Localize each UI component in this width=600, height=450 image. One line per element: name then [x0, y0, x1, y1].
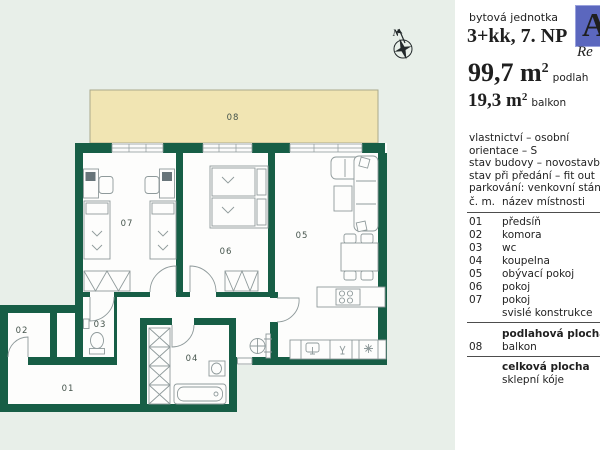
wardrobe [225, 271, 258, 291]
entrance-threshold [238, 358, 253, 364]
wardrobe [84, 271, 130, 291]
compass-icon: N [391, 28, 415, 62]
floor-plan-svg: N 0102030405060708 [0, 0, 455, 450]
toilet-icon [91, 333, 104, 349]
apartment-outline [0, 143, 387, 412]
room-label-02: 02 [16, 326, 29, 336]
room-table-row: 01 předsíň [469, 216, 592, 229]
balcony-table-row: 08 balkon [469, 341, 537, 353]
room-name: pokoj [502, 281, 530, 294]
small-sink [84, 319, 90, 329]
room-number: 07 [469, 294, 502, 307]
room-name: komora [502, 229, 542, 242]
floor-area-suffix: podlah [553, 72, 589, 84]
room-table-row: 02 komora [469, 229, 592, 242]
room-name: pokoj [502, 294, 530, 307]
room-table-row: 04 koupelna [469, 255, 592, 268]
desk-chair [145, 177, 159, 194]
floor-area-sup: 2 [542, 61, 549, 76]
desk-chair [99, 177, 113, 194]
room-name: obývací pokoj [502, 268, 574, 281]
room-number: 03 [469, 242, 502, 255]
room-label-03: 03 [94, 320, 107, 330]
room-table-row: 07 pokoj [469, 294, 592, 307]
unit-type-title: 3+kk, 7. NP [467, 25, 567, 48]
room-name: wc [502, 242, 516, 255]
room-number: 05 [469, 268, 502, 281]
room-label-07: 07 [121, 219, 134, 229]
table-divider [467, 356, 600, 357]
unit-label: bytová jednotka [469, 11, 558, 24]
property-detail-line: orientace – S [469, 145, 600, 158]
room-table-row: svislé konstrukce [469, 307, 592, 320]
compass-north-label: N [392, 28, 400, 38]
balcony-row-number: 08 [469, 341, 502, 353]
floor-plan: N 0102030405060708 [0, 0, 455, 450]
room-name: svislé konstrukce [502, 307, 592, 320]
kitchen-island [317, 287, 385, 307]
room-number: 04 [469, 255, 502, 268]
table-divider [467, 212, 600, 213]
room-table-row: 03 wc [469, 242, 592, 255]
company-logo: A [575, 5, 600, 47]
table-divider [467, 322, 600, 323]
room-name: koupelna [502, 255, 550, 268]
room-label-08: 08 [227, 113, 240, 123]
room-number [469, 307, 502, 320]
floor-area-value: 99,7 m [468, 58, 542, 87]
room-number: 02 [469, 229, 502, 242]
room-number: 01 [469, 216, 502, 229]
balcony-area-sup: 2 [522, 91, 528, 103]
info-panel: bytová jednotka 3+kk, 7. NP A Re 99,7 m2… [455, 0, 600, 450]
kitchen-counter [290, 340, 386, 359]
property-detail-line: stav při předání – fit out [469, 170, 600, 183]
balcony-area-line: 19,3 m2balkon [468, 90, 566, 112]
room-label-04: 04 [186, 354, 199, 364]
room-table-row: 05 obývací pokoj [469, 268, 592, 281]
room-label-01: 01 [62, 384, 75, 394]
room-table: 01 předsíň 02 komora 03 wc 04 koupelna 0… [469, 216, 592, 320]
coffee-table [334, 186, 352, 211]
table-header-num: č. m. [469, 196, 502, 208]
property-details: vlastnictví – osobníorientace – Sstav bu… [469, 132, 600, 195]
property-detail-line: parkování: venkovní stání, v c [469, 182, 600, 195]
property-detail-line: vlastnictví – osobní [469, 132, 600, 145]
cellar-label: sklepní kóje [502, 374, 564, 386]
floor-total-label: podlahová plocha [502, 328, 600, 340]
floor-plan-page: N 0102030405060708 bytová jednotka 3+kk,… [0, 0, 600, 450]
room-name: předsíň [502, 216, 541, 229]
table-header-name: název místnosti [502, 196, 585, 208]
property-detail-line: stav budovy – novostavba [469, 157, 600, 170]
dining-table [341, 243, 378, 271]
balcony-row-name: balkon [502, 341, 537, 353]
room-table-row: 06 pokoj [469, 281, 592, 294]
total-area-label: celková plocha [502, 361, 590, 373]
room-label-05: 05 [296, 231, 309, 241]
logo-letter: A [582, 7, 600, 44]
room-label-06: 06 [220, 247, 233, 257]
floor-area: 99,7 m2podlah [468, 58, 588, 88]
balcony-area-value: 19,3 m [468, 90, 522, 111]
room-number: 06 [469, 281, 502, 294]
windows [112, 144, 362, 152]
balcony-area-suffix: balkon [531, 97, 566, 109]
table-header: č. m. název místnosti [469, 196, 585, 208]
